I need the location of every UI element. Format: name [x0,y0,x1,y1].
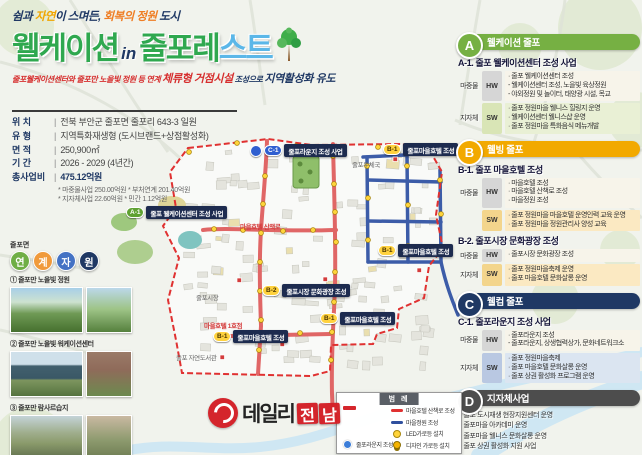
photo-label: ② 줄포만 노을빛 워케이션센터 [10,339,132,349]
project-info: 위 치|전북 부안군 줄포면 줄포리 643-3 일원유 형|지역특화재생형 (… [12,110,237,204]
project-items: · 마을호텔 조성· 마을호텔 산책로 조성· 마을정원 조성 [505,178,640,208]
project-table-row: SW· 줄포 정원마을 마을호텔 운영인력 교육 운영· 줄포 정원마을 정원관… [456,210,640,232]
project-items: · 줄포 정원마을축제 운영· 줄포 마을호텔 문화살롱 운영 [505,264,640,286]
info-row: 면 적|250,900㎡ [12,145,237,156]
legend-item-label: 디자인 가로등 설치 [406,441,450,450]
project-table-row: 지자체SW· 줄포 정원마을축제 운영· 줄포 마을호텔 문화살롱 운영 [456,264,640,286]
subtitle: 줄포웰케이션센터와 줄포만 노을빛 정원 등 연계 체류형 거점시설 조성으로 … [12,70,342,86]
info-row-separator: | [54,131,56,142]
section-badge: B [456,139,483,166]
project-item-line: · 마을호텔 산책로 조성 [508,188,637,197]
section-c: C웰컴 줄포C-1. 줄포라운지 조성 사업마중물HW· 줄포라운지 조성- 줄… [456,293,640,386]
section-badge: C [456,291,483,318]
subsection-title: C-1. 줄포라운지 조성 사업 [458,315,640,328]
info-note-line: * 지자체사업 22.60억원 * 민간 1.12억원 [58,195,237,204]
section-b: B웰빙 줄포B-1. 줄포 마을호텔 조성마중물HW· 마을호텔 조성· 마을호… [456,141,640,288]
info-row-separator: | [54,158,56,169]
section-title: 웰빙 줄포 [467,141,640,157]
subsection-title: A-1. 줄포 웰케이션센터 조성 사업 [458,56,640,69]
dot-blue-swatch [340,440,354,449]
header: 쉼과 자연이 스며든, 회복의 정원 도시 웰케이션in줄포레스트 줄포웰케이션… [12,8,342,86]
project-table-row: 마중물HW· 줄포 웰케이션센터 조성- 웰케이션센터 조성, 노을빛 육상정원… [456,71,640,101]
info-row-separator: | [54,145,56,156]
legend-item: 마을호텔 산책로 조성 [390,406,459,415]
hw-sw-tag: SW [482,210,502,232]
project-table-row: 마중물HW· 마을호텔 조성· 마을호텔 산책로 조성· 마을정원 조성 [456,178,640,208]
section-item-line: · 줄포 상권 활성화 지원 사업 [460,442,640,452]
section-header: B웰빙 줄포 [456,141,640,160]
watermark-logo: 데일리 전 남 [208,398,356,428]
info-row-label: 유 형 [12,131,54,142]
project-items: · 줄포 정원마을축제· 줄포 마을호텔 문화살롱 운영· 줄포 상권 활성화 … [505,353,640,383]
info-row: 위 치|전북 부안군 줄포면 줄포리 643-3 일원 [12,117,237,128]
legend-right-column: 마을호텔 산책로 조성마을정원 조성LED가로등 설치디자인 가로등 설치 [390,405,459,451]
area-label: 줄포면 [10,240,132,250]
info-row: 유 형|지역특화재생형 (도시브랜드+상점활성화) [12,131,237,142]
resource-circle: 계 [33,251,53,271]
project-panel: A웰케이션 줄포A-1. 줄포 웰케이션센터 조성 사업마중물HW· 줄포 웰케… [456,34,640,455]
legend-item: 마을정원 조성 [390,418,459,427]
project-items: · 줄포시장 문화광장 조성 [505,249,640,262]
project-item-line: - 줄포라운지, 상생협력상가, 문화네트워크소 [508,340,637,349]
section-header: A웰케이션 줄포 [456,34,640,53]
photo-row [10,351,132,397]
actor-label: 마중물 [456,249,482,262]
photo-item: ① 줄포만 노을빛 정원 [10,275,132,333]
photo-list: ① 줄포만 노을빛 정원② 줄포만 노을빛 워케이션센터③ 줄포만 람사르습지 [10,275,132,455]
legend-item: 줄포라운지 조성 [340,440,393,449]
project-item-line: - 웰케이션센터 조성, 노을빛 육상정원 [508,82,637,91]
project-item-line: · 마을정원 조성 [508,197,637,206]
project-item-line: · 줄포 정원마을 웰니스 힐링지 운영 [508,105,637,114]
hw-sw-tag: SW [482,264,502,286]
resource-circle: 연 [10,251,30,271]
project-items: · 줄포라운지 조성- 줄포라운지, 상생협력상가, 문화네트워크소 [505,330,640,352]
actor-label: 지자체 [456,264,482,286]
project-item-line: · 마을호텔 조성 [508,180,637,189]
project-item-line: · 줄포 정원마을 정원관리사 양성 교육 [508,221,637,230]
project-items: · 줄포 웰케이션센터 조성- 웰케이션센터 조성, 노을빛 육상정원- 야외정… [505,71,640,101]
photo-item: ③ 줄포만 람사르습지 [10,403,132,455]
project-item-line: · 줄포라운지 조성 [508,332,637,341]
info-row: 기 간|2026 - 2029 (4년간) [12,158,237,169]
photo-label: ③ 줄포만 람사르습지 [10,403,132,413]
hw-sw-tag: SW [482,103,502,133]
subsection-title: B-2. 줄포시장 문화광장 조성 [458,234,640,247]
section-item-list: · 줄포 도시재생 현장지원센터 운영· 줄포마을 아카데미 운영· 줄포마을 … [460,411,640,452]
info-row-label: 총사업비 [12,172,54,183]
info-rows: 위 치|전북 부안군 줄포면 줄포리 643-3 일원유 형|지역특화재생형 (… [12,117,237,183]
project-items: · 줄포 정원마을 웰니스 힐링지 운영· 웰케이션센터 웰니스샵 운영· 줄포… [505,103,640,133]
info-row-label: 면 적 [12,145,54,156]
actor-label: 마중물 [456,178,482,208]
actor-label: 지자체 [456,353,482,383]
project-table-row: 지자체SW· 줄포 정원마을 웰니스 힐링지 운영· 웰케이션센터 웰니스샵 운… [456,103,640,133]
section-item-line: · 줄포마을 아카데미 운영 [460,421,640,431]
legend-item: LED가로등 설치 [390,429,459,438]
press-logo-icon [208,398,238,428]
section-header: C웰컴 줄포 [456,293,640,312]
project-item-line: · 줄포 정원마을 마을호텔 운영인력 교육 운영 [508,212,637,221]
section-item-line: · 줄포마을 웰니스 문화살롱 운영 [460,432,640,442]
legend-item-label: 마을정원 조성 [406,418,438,427]
info-row-label: 기 간 [12,158,54,169]
section-title: 웰컴 줄포 [467,293,640,309]
page-title: 웰케이션in줄포레스트 [12,26,342,64]
legend-item: 디자인 가로등 설치 [390,441,459,450]
project-item-line: · 줄포 마을호텔 문화살롱 운영 [508,275,637,284]
legend-item-label: LED가로등 설치 [406,429,443,438]
poster-canvas: 쉼과 자연이 스며든, 회복의 정원 도시 웰케이션in줄포레스트 줄포웰케이션… [0,0,642,455]
project-item-line: · 웰케이션센터 웰니스샵 운영 [508,114,637,123]
actor-label: 마중물 [456,330,482,352]
resource-circle: 원 [79,251,99,271]
project-item-line: · 줄포 마을호텔 문화살롱 운영 [508,364,637,373]
photo-row [10,287,132,333]
subsection-title: B-1. 줄포 마을호텔 조성 [458,163,640,176]
watermark-box-1: 전 [297,402,319,424]
info-row-separator: | [54,117,56,128]
photo-image [86,287,132,333]
photo-image [86,351,132,397]
info-row-value: 지역특화재생형 (도시브랜드+상점활성화) [60,131,208,142]
watermark-dash [343,406,356,410]
section-item-line: · 줄포 도시재생 현장지원센터 운영 [460,411,640,421]
hw-sw-tag: HW [482,249,502,262]
resource-circles: 연계자원 [10,251,132,271]
project-table-row: 마중물HW· 줄포시장 문화광장 조성 [456,249,640,262]
info-row-value: 2026 - 2029 (4년간) [60,158,133,169]
photo-image [10,351,83,397]
tree-icon [276,26,302,62]
section-title: 지자체사업 [467,390,640,406]
tagline: 쉼과 자연이 스며든, 회복의 정원 도시 [12,8,342,24]
photo-image [86,415,132,455]
legend-item-label: 줄포라운지 조성 [356,440,393,449]
actor-label [456,210,482,232]
project-table-row: 마중물HW· 줄포라운지 조성- 줄포라운지, 상생협력상가, 문화네트워크소 [456,330,640,352]
info-note-line: * 마중물사업 250.00억원 * 부처연계 201.40억원 [58,186,237,195]
info-row-value: 전북 부안군 줄포면 줄포리 643-3 일원 [60,117,196,128]
hw-sw-tag: HW [482,178,502,208]
legend-title: 범 례 [380,393,419,405]
project-item-line: · 줄포 정원마을축제 [508,355,637,364]
photo-item: ② 줄포만 노을빛 워케이션센터 [10,339,132,397]
project-items: · 줄포 정원마을 마을호텔 운영인력 교육 운영· 줄포 정원마을 정원관리사… [505,210,640,232]
actor-label: 지자체 [456,103,482,133]
watermark-box-2: 남 [319,402,341,424]
hw-sw-tag: SW [482,353,502,383]
info-row: 총사업비|475.12억원 [12,172,237,183]
project-item-line: · 줄포 상권 활성화 프로그램 운영 [508,373,637,382]
info-row-separator: | [54,172,56,183]
linked-resources: 줄포면 연계자원 ① 줄포만 노을빛 정원② 줄포만 노을빛 워케이션센터③ 줄… [10,240,132,455]
section-badge: A [456,32,483,59]
photo-image [10,287,83,333]
photo-row [10,415,132,455]
hw-sw-tag: HW [482,330,502,352]
section-title: 웰케이션 줄포 [467,34,640,50]
project-item-line: · 줄포 정원마을 특화음식 메뉴개발 [508,123,637,132]
project-item-line: · 줄포 정원마을축제 운영 [508,266,637,275]
info-row-label: 위 치 [12,117,54,128]
watermark-text: 데일리 [242,398,294,428]
project-table-row: 지자체SW· 줄포 정원마을축제· 줄포 마을호텔 문화살롱 운영· 줄포 상권… [456,353,640,383]
dot-yellow-swatch [390,430,404,438]
project-item-line: - 야외정원 및 놀이터, 태양광 시설, 목교 [508,91,637,100]
hw-sw-tag: HW [482,71,502,101]
info-row-value: 250,900㎡ [60,145,99,156]
section-a: A웰케이션 줄포A-1. 줄포 웰케이션센터 조성 사업마중물HW· 줄포 웰케… [456,34,640,136]
actor-label: 마중물 [456,71,482,101]
section-d: D지자체사업· 줄포 도시재생 현장지원센터 운영· 줄포마을 아카데미 운영·… [456,390,640,455]
resource-circle: 자 [56,251,76,271]
project-item-line: · 줄포 웰케이션센터 조성 [508,73,637,82]
legend-item-label: 마을호텔 산책로 조성 [406,406,455,415]
photo-label: ① 줄포만 노을빛 정원 [10,275,132,285]
photo-image [10,415,83,455]
info-notes: * 마중물사업 250.00억원 * 부처연계 201.40억원* 지자체사업 … [12,186,237,204]
info-row-value: 475.12억원 [60,172,102,183]
line-red-swatch [390,409,404,412]
section-header: D지자체사업 [456,390,640,409]
project-item-line: · 줄포시장 문화광장 조성 [508,251,637,260]
line-blue-swatch [390,421,404,424]
